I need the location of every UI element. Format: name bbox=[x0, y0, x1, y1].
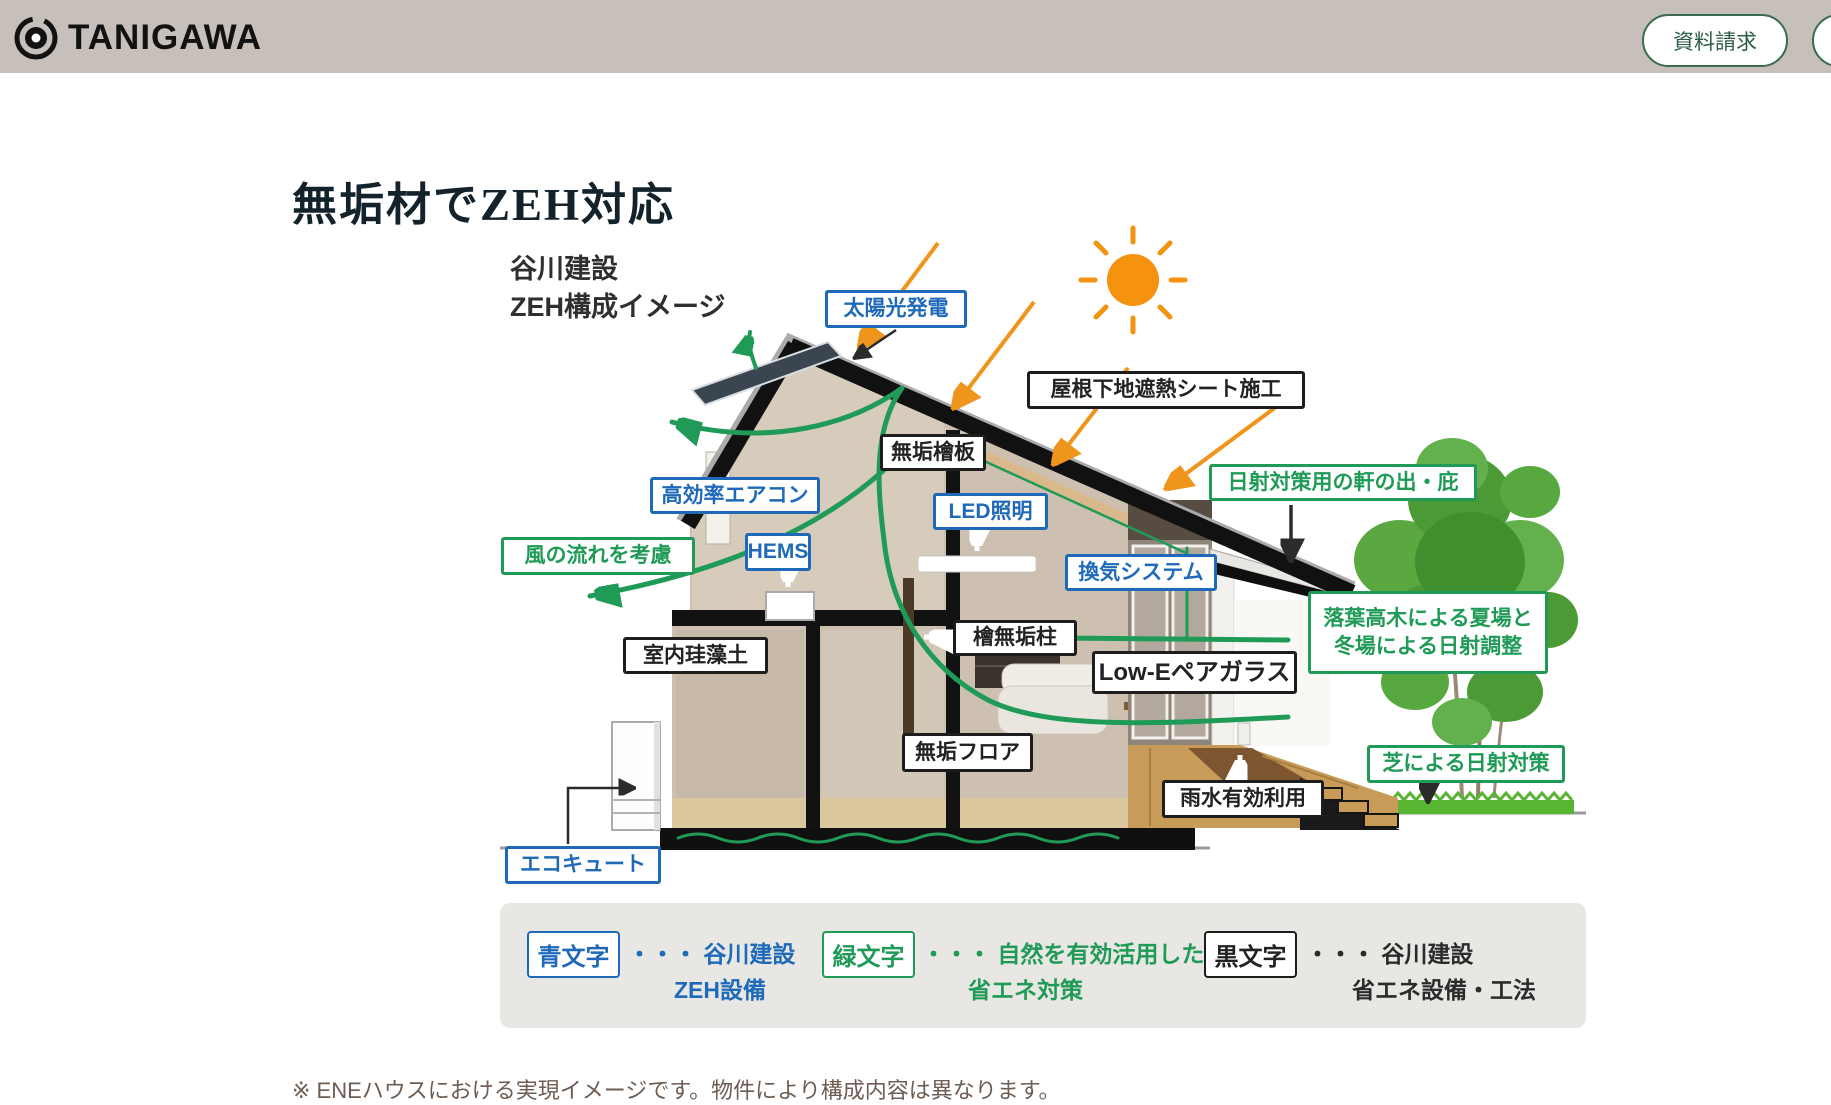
label-led: LED照明 bbox=[933, 493, 1048, 530]
tanigawa-logo-icon bbox=[12, 14, 60, 62]
disclaimer-note: ※ ENEハウスにおける実現イメージです。物件により構成内容は異なります。 bbox=[292, 1073, 1061, 1105]
legend-desc-green: ・・・ 自然を有効活用した 省エネ対策 bbox=[922, 936, 1204, 1008]
label-low-e-glass: Low-Eペアガラス bbox=[1092, 651, 1297, 694]
label-hinoki-pillar: 檜無垢柱 bbox=[953, 620, 1077, 656]
label-rainwater: 雨水有効利用 bbox=[1162, 780, 1324, 818]
label-ventilation: 換気システム bbox=[1065, 554, 1217, 591]
brand-name: TANIGAWA bbox=[68, 18, 262, 58]
lawn-strip bbox=[1392, 793, 1574, 814]
hems-device bbox=[766, 592, 814, 620]
page: { "header": { "brand": "TANIGAWA", "requ… bbox=[0, 0, 1831, 1103]
label-solar: 太陽光発電 bbox=[825, 290, 967, 328]
label-aircon: 高効率エアコン bbox=[650, 477, 820, 514]
label-roof-sheet: 屋根下地遮熱シート施工 bbox=[1027, 371, 1305, 409]
legend: 青文字 ・・・ 谷川建設 ZEH設備 緑文字 ・・・ 自然を有効活用した 省エネ… bbox=[500, 903, 1586, 1028]
label-hinoki-board: 無垢檜板 bbox=[880, 434, 986, 471]
label-diatomite: 室内珪藻土 bbox=[623, 637, 768, 674]
label-eaves: 日射対策用の軒の出・庇 bbox=[1209, 464, 1477, 501]
ecocute-unit bbox=[612, 722, 660, 830]
label-wind-flow: 風の流れを考慮 bbox=[501, 537, 695, 575]
site-header: TANIGAWA 資料請求 bbox=[0, 0, 1831, 73]
legend-desc-blue: ・・・ 谷川建設 ZEH設備 bbox=[628, 936, 795, 1008]
request-materials-button[interactable]: 資料請求 bbox=[1642, 14, 1788, 67]
label-hems: HEMS bbox=[745, 533, 811, 571]
brand-logo[interactable]: TANIGAWA bbox=[12, 14, 262, 62]
legend-desc-black: ・・・ 谷川建設 省エネ設備・工法 bbox=[1306, 936, 1536, 1008]
label-lawn: 芝による日射対策 bbox=[1367, 745, 1565, 783]
label-muku-floor: 無垢フロア bbox=[902, 733, 1033, 772]
partial-edge-button[interactable] bbox=[1812, 14, 1831, 67]
sun-icon bbox=[1081, 228, 1185, 332]
legend-key-black: 黒文字 bbox=[1204, 931, 1297, 978]
legend-key-blue: 青文字 bbox=[527, 931, 620, 978]
label-ecocute: エコキュート bbox=[505, 846, 661, 884]
label-trees: 落葉高木による夏場と 冬場による日射調整 bbox=[1308, 591, 1548, 674]
legend-key-green: 緑文字 bbox=[822, 931, 915, 978]
